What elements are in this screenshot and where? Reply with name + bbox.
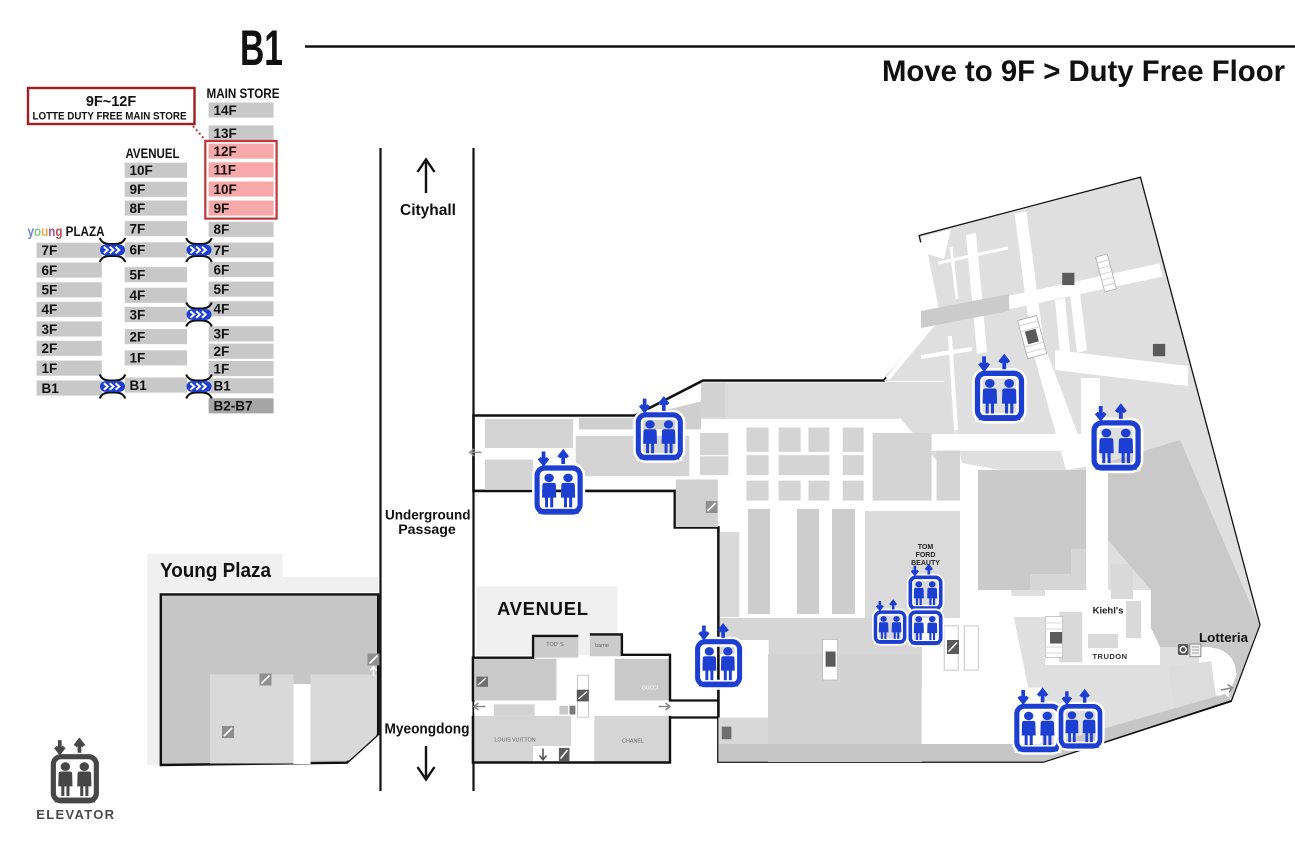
svg-text:9F~12F: 9F~12F — [86, 94, 137, 110]
svg-text:7F: 7F — [214, 243, 230, 258]
svg-text:3F: 3F — [42, 322, 58, 337]
svg-text:LOUIS VUITTON: LOUIS VUITTON — [494, 738, 535, 744]
svg-text:B2-B7: B2-B7 — [214, 399, 253, 414]
svg-text:GUCCI: GUCCI — [642, 686, 658, 692]
svg-text:TOD' S: TOD' S — [546, 642, 564, 648]
svg-text:2F: 2F — [42, 341, 58, 356]
svg-text:B1: B1 — [130, 378, 148, 393]
svg-text:Move to 9F > Duty Free Floor: Move to 9F > Duty Free Floor — [882, 55, 1285, 88]
svg-text:CHANEL: CHANEL — [622, 739, 644, 745]
svg-text:12F: 12F — [214, 144, 237, 159]
svg-text:Young Plaza: Young Plaza — [160, 560, 272, 582]
svg-text:11F: 11F — [214, 163, 237, 178]
svg-text:2F: 2F — [214, 344, 230, 359]
svg-text:AVENUEL: AVENUEL — [497, 598, 588, 619]
svg-text:TOM: TOM — [918, 544, 934, 551]
svg-text:4F: 4F — [42, 302, 58, 317]
svg-text:ELEVATOR: ELEVATOR — [36, 807, 115, 822]
svg-text:MAIN STORE: MAIN STORE — [207, 86, 280, 101]
svg-text:5F: 5F — [214, 282, 230, 297]
svg-text:B1: B1 — [214, 379, 232, 394]
svg-text:10F: 10F — [130, 163, 153, 178]
svg-text:7F: 7F — [130, 222, 146, 237]
svg-text:1F: 1F — [42, 361, 58, 376]
svg-text:10F: 10F — [214, 182, 237, 197]
svg-text:8F: 8F — [214, 222, 230, 237]
svg-text:Cityhall: Cityhall — [400, 202, 456, 219]
svg-text:8F: 8F — [130, 201, 146, 216]
svg-text:14F: 14F — [214, 103, 237, 118]
svg-text:3F: 3F — [214, 327, 230, 342]
svg-text:6F: 6F — [130, 243, 146, 258]
svg-text:Lotteria: Lotteria — [1199, 630, 1249, 645]
svg-text:1F: 1F — [214, 361, 230, 376]
svg-text:4F: 4F — [130, 288, 146, 303]
svg-text:6F: 6F — [214, 262, 230, 277]
svg-text:AVENUEL: AVENUEL — [126, 146, 180, 161]
svg-text:Passage: Passage — [398, 522, 456, 538]
svg-text:barrie: barrie — [595, 643, 609, 649]
svg-text:7F: 7F — [42, 243, 58, 258]
svg-text:5F: 5F — [42, 283, 58, 298]
svg-text:13F: 13F — [214, 126, 237, 141]
svg-text:FORD: FORD — [916, 552, 936, 559]
svg-text:5F: 5F — [130, 268, 146, 283]
svg-text:young PLAZA: young PLAZA — [28, 224, 105, 239]
svg-text:6F: 6F — [42, 263, 58, 278]
svg-text:LOTTE DUTY FREE MAIN STORE: LOTTE DUTY FREE MAIN STORE — [33, 111, 187, 123]
svg-text:4F: 4F — [214, 302, 230, 317]
svg-text:3F: 3F — [130, 307, 146, 322]
svg-text:Myeongdong: Myeongdong — [385, 722, 470, 738]
svg-text:9F: 9F — [214, 201, 230, 216]
svg-text:Kiehl's: Kiehl's — [1093, 606, 1124, 617]
svg-text:2F: 2F — [130, 330, 146, 345]
svg-text:9F: 9F — [130, 182, 146, 197]
svg-text:B1: B1 — [240, 20, 283, 76]
svg-text:B1: B1 — [42, 381, 60, 396]
svg-text:TRUDON: TRUDON — [1092, 652, 1127, 661]
svg-text:1F: 1F — [130, 351, 146, 366]
